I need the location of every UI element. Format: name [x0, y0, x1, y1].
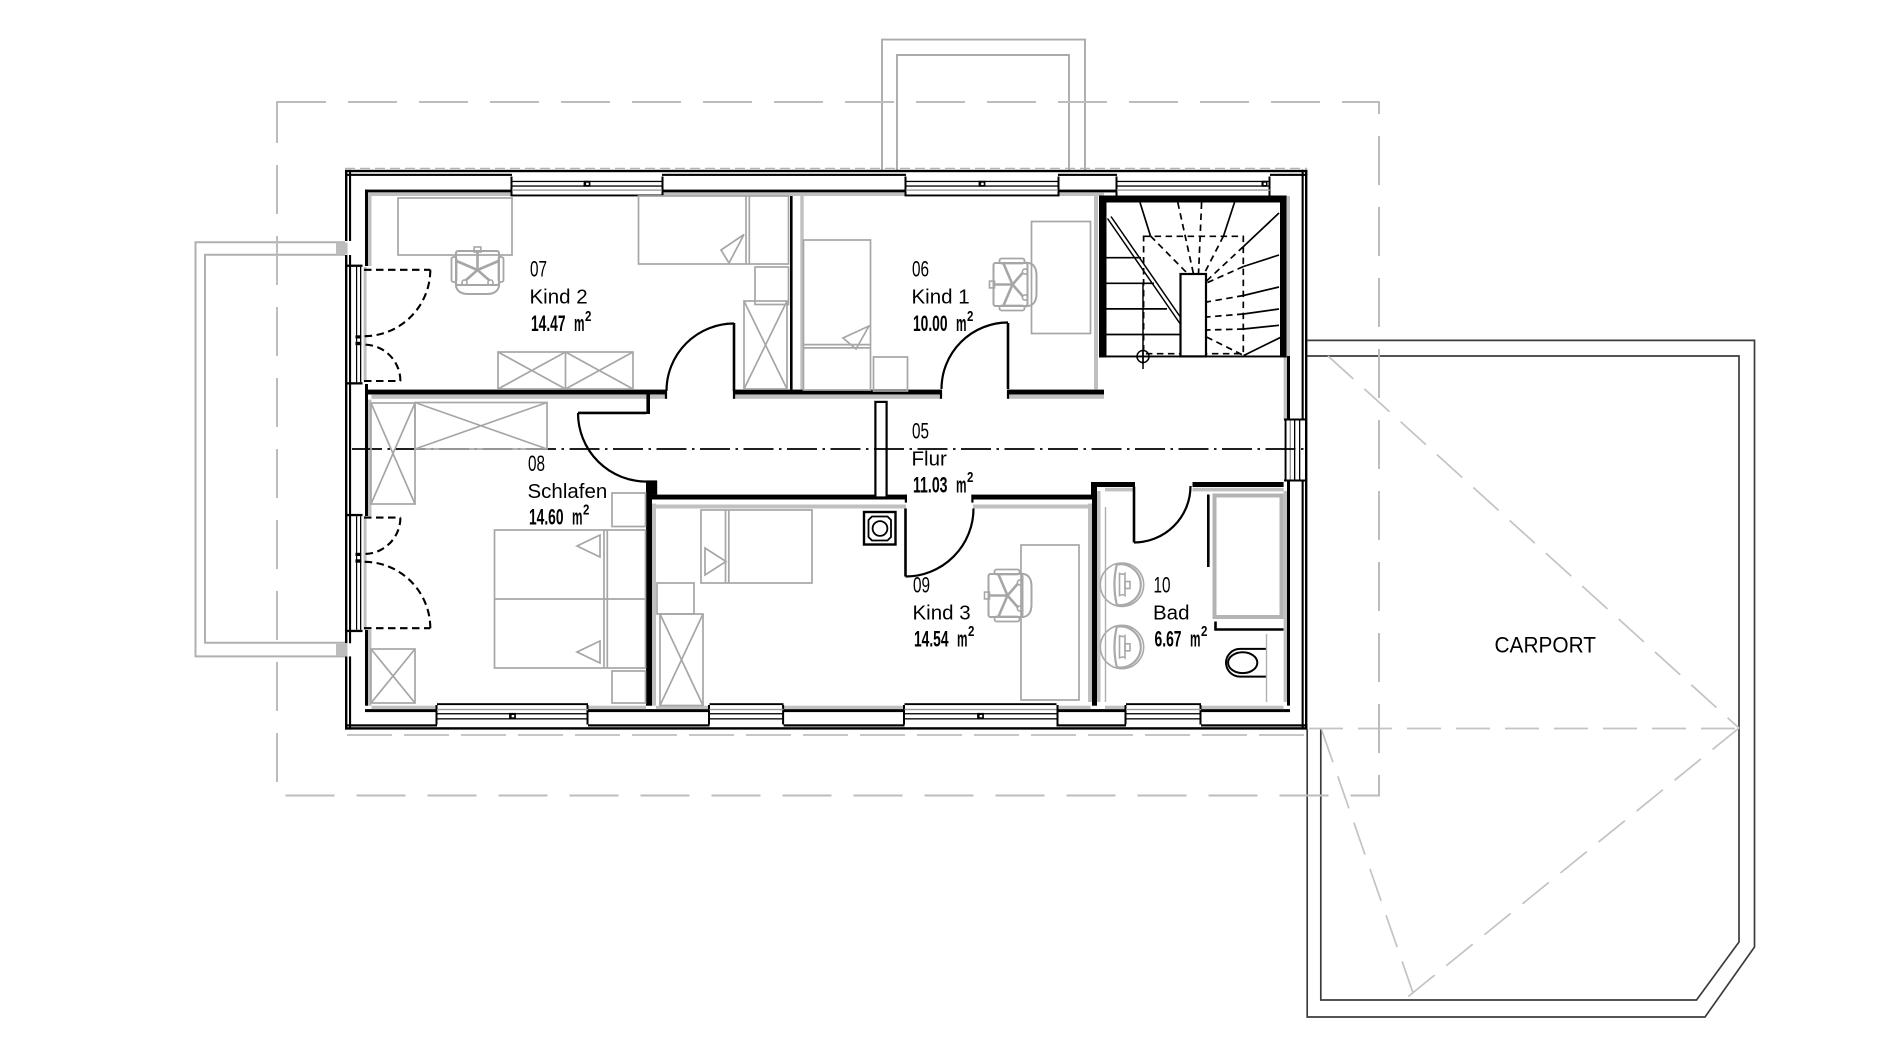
svg-text:08: 08: [528, 451, 545, 476]
svg-text:m: m: [572, 505, 583, 530]
svg-text:14.60: 14.60: [529, 505, 564, 530]
svg-text:10.00: 10.00: [913, 311, 948, 336]
svg-text:07: 07: [530, 257, 547, 282]
svg-text:2: 2: [968, 624, 974, 640]
svg-text:09: 09: [913, 572, 930, 597]
svg-text:6.67: 6.67: [1155, 626, 1182, 651]
svg-text:m: m: [1190, 626, 1201, 651]
svg-text:m: m: [956, 472, 967, 497]
svg-text:10: 10: [1154, 572, 1171, 597]
svg-text:Kind 1: Kind 1: [912, 286, 970, 309]
svg-text:11.03: 11.03: [913, 472, 948, 497]
svg-text:Schlafen: Schlafen: [528, 480, 608, 503]
svg-text:m: m: [956, 311, 967, 336]
svg-text:Kind 2: Kind 2: [530, 286, 588, 309]
svg-text:14.47: 14.47: [531, 311, 566, 336]
svg-text:Flur: Flur: [912, 448, 947, 471]
svg-text:2: 2: [1201, 624, 1207, 640]
svg-text:14.54: 14.54: [914, 626, 949, 651]
svg-text:05: 05: [912, 419, 929, 444]
svg-text:CARPORT: CARPORT: [1495, 633, 1597, 658]
svg-text:2: 2: [967, 470, 973, 486]
svg-text:2: 2: [585, 309, 591, 325]
svg-text:2: 2: [583, 502, 589, 518]
svg-text:m: m: [574, 311, 585, 336]
svg-text:2: 2: [967, 309, 973, 325]
svg-text:Bad: Bad: [1153, 602, 1189, 625]
svg-text:m: m: [957, 626, 968, 651]
svg-text:06: 06: [912, 257, 929, 282]
svg-text:Kind 3: Kind 3: [913, 602, 971, 625]
